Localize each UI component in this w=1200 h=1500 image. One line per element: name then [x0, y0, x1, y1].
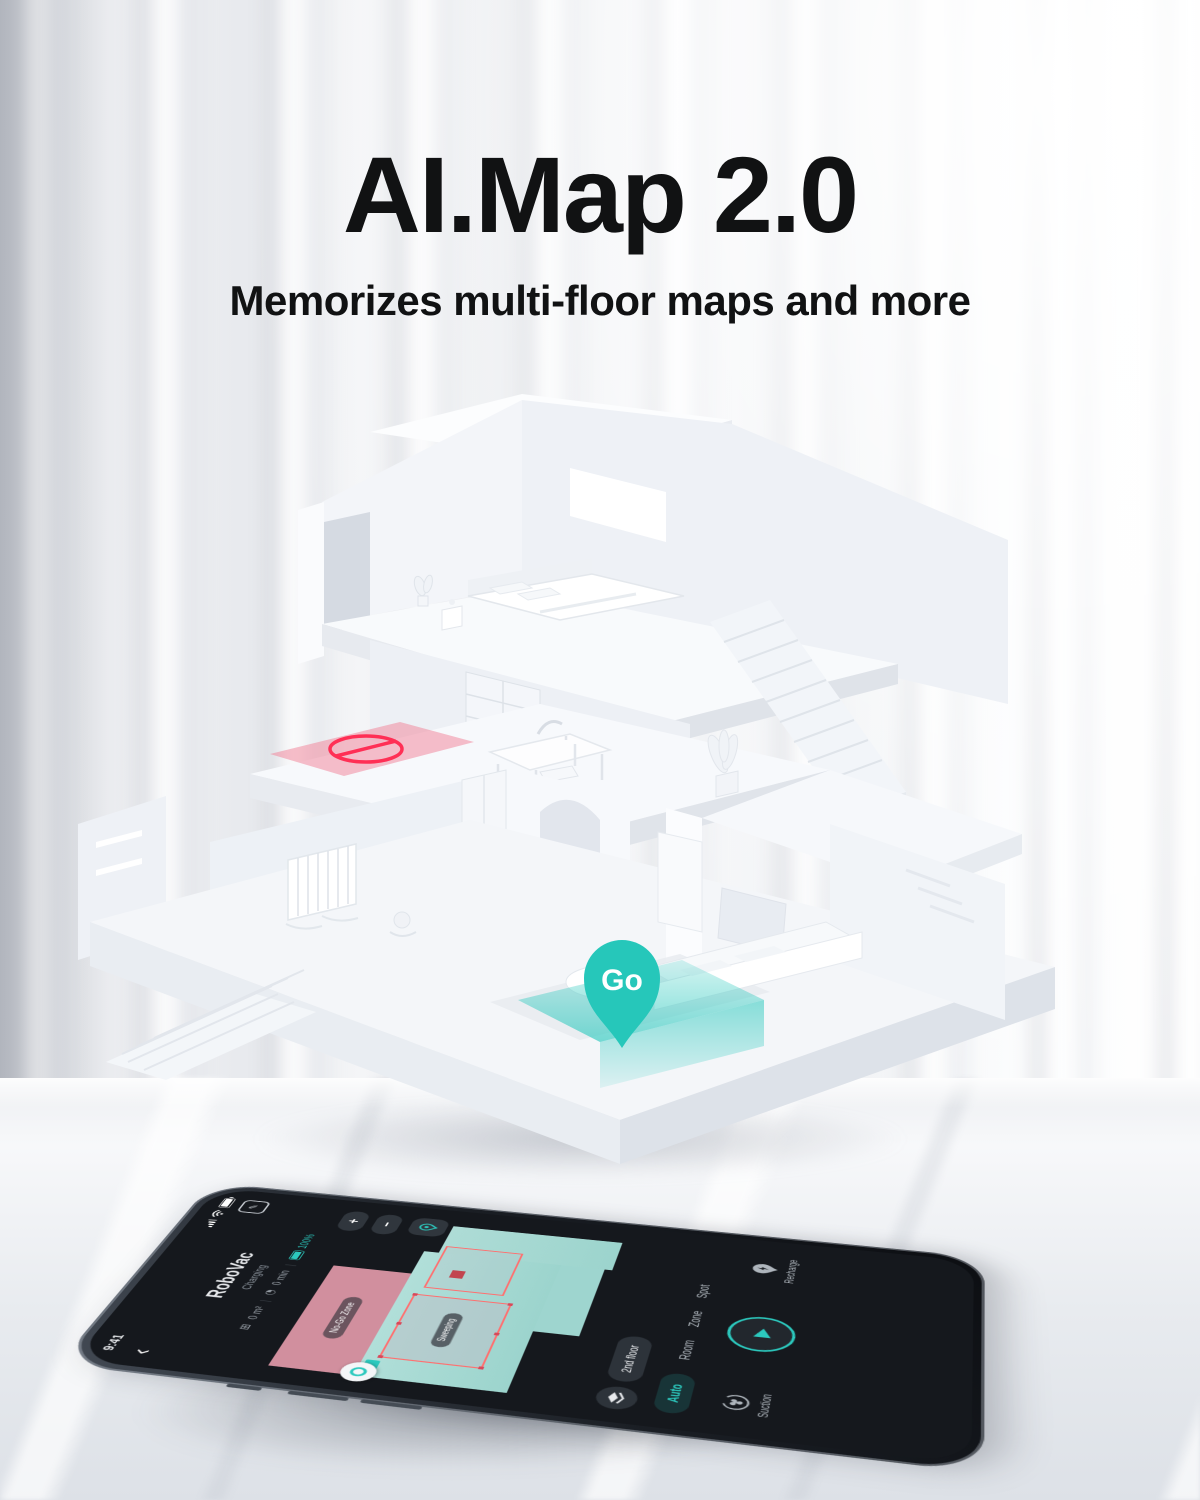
- clock-text: 9:41: [99, 1334, 128, 1352]
- robot-battery-icon: [288, 1250, 305, 1260]
- headline-block: AI.Map 2.0 Memorizes multi-floor maps an…: [0, 138, 1200, 325]
- tab-auto[interactable]: Auto: [652, 1372, 697, 1415]
- suction-label: Suction: [755, 1393, 775, 1418]
- layers-icon: [605, 1391, 628, 1405]
- go-pin-label: Go: [601, 964, 643, 997]
- pin-icon: [417, 1223, 439, 1232]
- room-label: Sweeping: [429, 1312, 465, 1348]
- back-button[interactable]: ‹: [126, 1348, 155, 1356]
- recharge-icon: [751, 1263, 780, 1276]
- layers-button[interactable]: [593, 1385, 641, 1412]
- zoom-out-button[interactable]: −: [368, 1214, 405, 1235]
- battery-icon: [217, 1198, 236, 1209]
- wifi-icon: [210, 1210, 226, 1218]
- banner-subtitle: Memorizes multi-floor maps and more: [0, 277, 1200, 325]
- banner-title: AI.Map 2.0: [0, 138, 1200, 251]
- play-button[interactable]: ▶: [723, 1314, 798, 1355]
- area-stat: 0 m²: [244, 1306, 267, 1320]
- recharge-label: Recharge: [782, 1259, 800, 1284]
- battery-stat: 100%: [294, 1234, 317, 1250]
- ground-floor: Go: [78, 770, 1055, 1164]
- area-icon: ⊞: [237, 1323, 255, 1330]
- fan-icon: [719, 1393, 753, 1413]
- recharge-button[interactable]: Recharge: [749, 1256, 800, 1284]
- pencil-icon: ✎: [246, 1204, 262, 1210]
- zoom-in-button[interactable]: +: [335, 1211, 372, 1232]
- signal-icon: [203, 1219, 218, 1227]
- cabinet: [658, 832, 702, 932]
- locate-button[interactable]: [406, 1217, 451, 1237]
- furniture-marker: [449, 1270, 466, 1279]
- tab-spot[interactable]: Spot: [693, 1284, 712, 1299]
- suction-button[interactable]: Suction: [718, 1389, 775, 1418]
- tab-zone[interactable]: Zone: [685, 1310, 705, 1328]
- duration-stat: 0 min: [268, 1270, 292, 1286]
- marketing-banner: AI.Map 2.0 Memorizes multi-floor maps an…: [0, 0, 1200, 1500]
- tab-room[interactable]: Room: [676, 1339, 698, 1361]
- house-illustration: Go: [70, 372, 1130, 1172]
- floor-selector[interactable]: 2nd floor: [605, 1335, 654, 1383]
- clock-icon: ◔: [261, 1289, 279, 1296]
- play-icon: ▶: [748, 1327, 775, 1338]
- no-go-zone-label: No-Go Zone: [320, 1296, 365, 1339]
